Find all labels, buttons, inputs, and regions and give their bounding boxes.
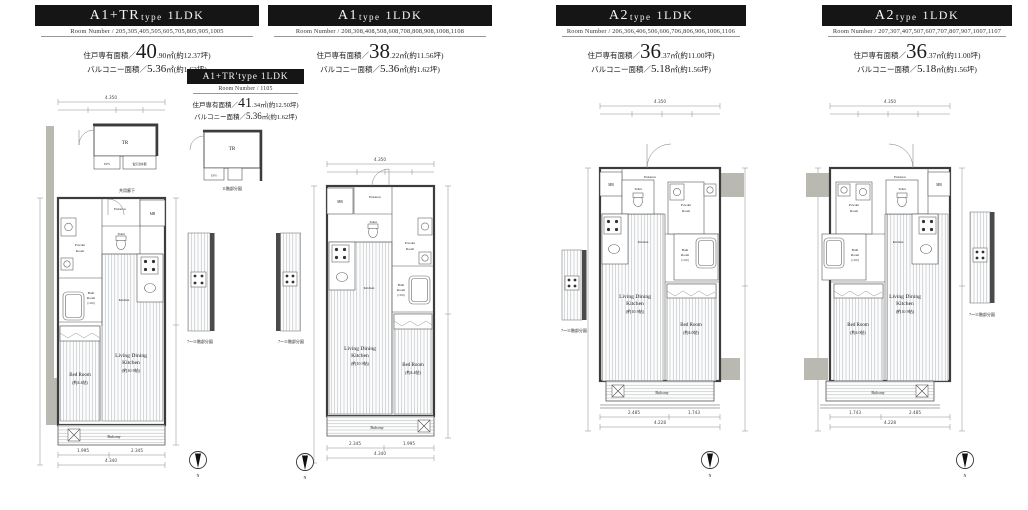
room-numbers: Room Number / 205,305,405,505,605,705,80… xyxy=(41,26,253,37)
room-label-balcony: Balcony xyxy=(871,390,884,395)
dim-bottom-total: 4.340 xyxy=(374,451,386,456)
room-label-bed: Bed Room xyxy=(680,323,702,328)
room-label-powder-2: Room xyxy=(682,209,691,213)
room-label-balcony: Balcony xyxy=(107,434,120,439)
compass-n-label: N xyxy=(964,473,967,478)
balcony-line: バルコニー面積／5.18㎡(約1.56坪) xyxy=(822,63,1012,75)
dim-bottom-b: 2.485 xyxy=(909,410,921,415)
header-a2-left: A2type1LDK Room Number / 206,306,406,506… xyxy=(556,5,746,75)
toilet: Toilet xyxy=(116,232,126,250)
neighbor-block-top xyxy=(720,173,744,197)
type-title-bar: A2type1LDK xyxy=(556,5,746,26)
partial-plan-strip: 7〜11階部分図 xyxy=(969,212,995,317)
type-layout: 1LDK xyxy=(652,8,693,23)
dim-top-total: 4.350 xyxy=(884,99,896,104)
type-name: A1+TR xyxy=(90,8,140,24)
type-word: type xyxy=(358,9,382,22)
room-label-ldk-2: Kitchen xyxy=(351,353,369,359)
balcony-label: バルコニー面積／ xyxy=(857,65,917,74)
room-label-kitchen: Kitchen xyxy=(893,240,904,244)
dim-bottom-total: 4.228 xyxy=(654,420,666,425)
toilet: Toilet xyxy=(368,220,378,238)
room-label-eps: EPS xyxy=(104,162,110,166)
room-label-mb: MB xyxy=(936,183,942,187)
trunk-room: TR EPS 電気温水器 xyxy=(79,125,157,169)
room-label-ldk-1: Living Dining xyxy=(889,294,921,300)
room-label-bath-1: Bath xyxy=(398,283,405,287)
area-line: 住戸専有面積／40.90㎡(約12.37坪) xyxy=(35,39,259,64)
room-numbers: Room Number / 207,307,407,507,607,707,80… xyxy=(828,26,1006,37)
closet xyxy=(394,314,432,329)
room-label-ldk-2: Kitchen xyxy=(896,301,914,307)
balcony-unit: ㎡(約1.56坪) xyxy=(670,65,711,74)
room-label-powder-1: Powder xyxy=(849,203,860,207)
room-label-bath-2: Room xyxy=(681,253,690,257)
dim-bottom-total: 4.340 xyxy=(105,458,117,463)
meter-box: MB xyxy=(600,172,622,196)
room-label-bath-3: (1116) xyxy=(681,259,688,262)
partial-plan-strip: 7〜11階部分図 xyxy=(187,233,214,344)
room-label-bath-3: (1116) xyxy=(851,259,858,262)
dim-bottom-a: 1.743 xyxy=(849,410,861,415)
room-label-bath-2: Room xyxy=(397,288,406,292)
area-unit: .22㎡(約11.56坪) xyxy=(390,51,443,60)
meter-box: MB xyxy=(327,188,353,214)
room-label-kitchen: Kitchen xyxy=(364,286,375,290)
room-label-toilet: Toilet xyxy=(117,232,125,236)
area-unit: .90㎡(約12.37坪) xyxy=(157,51,211,60)
room-label-balcony: Balcony xyxy=(655,390,668,395)
floorplan-a1-drawing: 4.350 2.345 1.995 4.340 MB Entrance Toi xyxy=(272,86,497,506)
floorplan-a2-left-drawing: 4.350 2.485 1.743 4.228 Entrance MB xyxy=(550,86,795,510)
label-common-corridor: 共用廊下 xyxy=(119,187,135,193)
header-a2-right: A2type1LDK Room Number / 207,307,407,507… xyxy=(822,5,1012,75)
caption-partial-plan: 7〜11階部分図 xyxy=(187,338,213,344)
balcony-unit: ㎡(約1.62坪) xyxy=(399,65,440,74)
room-numbers: Room Number / 206,306,406,506,606,706,80… xyxy=(562,26,740,37)
meter-box: MB xyxy=(140,200,165,226)
bath-room: Bath Room (1116) xyxy=(674,234,718,280)
area-line: 住戸専有面積／38.22㎡(約11.56坪) xyxy=(268,39,492,64)
room-label-bath-1: Bath xyxy=(88,291,95,295)
type-layout: 1LDK xyxy=(164,8,205,23)
area-value: 40 xyxy=(136,39,157,63)
room-label-balcony: Balcony xyxy=(370,425,383,430)
balcony-value: 5.18 xyxy=(651,63,670,75)
trunk-room-11f: TR EPS 11階部分図 xyxy=(190,131,261,191)
balcony-value: 5.36 xyxy=(147,63,166,75)
shaft-wall xyxy=(46,126,54,378)
room-label-tr: TR xyxy=(122,141,129,146)
room-label-bed-size: (約4.4帖) xyxy=(72,379,88,385)
caption-partial-plan: 7〜11階部分図 xyxy=(561,327,587,333)
type-name: A2 xyxy=(609,8,629,24)
caption-11f-partial: 11階部分図 xyxy=(222,185,242,191)
room-label-bed-size: (約4.4帖) xyxy=(405,369,421,375)
area-label: 住戸専有面積／ xyxy=(854,51,907,60)
type-word: type xyxy=(895,9,919,22)
room-label-bath-2: Room xyxy=(87,296,96,300)
balcony-line: バルコニー面積／5.18㎡(約1.56坪) xyxy=(556,63,746,75)
room-label-ldk-size: (約10.9帖) xyxy=(122,367,141,374)
dim-bottom-b: 2.345 xyxy=(131,448,143,453)
balcony-unit: ㎡(約1.56坪) xyxy=(936,65,977,74)
floorplan-a1tr-drawing: 4.350 1.995 2.345 4.340 TR EPS 電気温水器 TR … xyxy=(30,86,310,506)
room-label-bath-2: Room xyxy=(851,253,860,257)
caption-partial-plan: 7〜11階部分図 xyxy=(969,311,995,317)
room-label-bed: Bed Room xyxy=(402,363,424,368)
room-label-bath-1: Bath xyxy=(682,248,689,252)
room-label-ldk-size: (約10.9帖) xyxy=(626,308,645,315)
room-label-powder-1: Powder xyxy=(681,203,692,207)
balcony-label: バルコニー面積／ xyxy=(591,65,651,74)
dim-bottom-total: 4.228 xyxy=(884,420,896,425)
room-label-ldk-1: Living Dining xyxy=(344,346,376,352)
neighbor-block-bottom xyxy=(804,358,828,380)
room-label-kitchen: Kitchen xyxy=(638,240,649,244)
dim-top-total: 4.350 xyxy=(654,99,666,104)
room-label-mb: MB xyxy=(608,183,614,187)
compass-icon: N xyxy=(297,454,314,481)
toilet: Toilet xyxy=(622,180,654,214)
room-label-powder-1: Powder xyxy=(75,243,86,247)
type-name: A2 xyxy=(875,8,895,24)
area-label: 住戸専有面積／ xyxy=(317,51,370,60)
header-a1: A1type1LDK Room Number / 208,308,408,508… xyxy=(268,5,492,75)
partial-plan-strip: 7〜11階部分図 xyxy=(276,233,304,344)
room-label-mb: MB xyxy=(337,200,343,204)
room-label-powder-2: Room xyxy=(406,247,415,251)
compass-icon: N xyxy=(702,452,719,479)
area-value: 38 xyxy=(369,39,390,63)
partial-plan-strip: 7〜11階部分図 xyxy=(561,250,587,333)
powder-room: Powder Room xyxy=(836,182,872,234)
floorplan-brochure-page: A1+TRtype1LDK Room Number / 205,305,405,… xyxy=(0,0,1028,510)
shaft-wall-lower xyxy=(46,378,58,425)
room-label-powder-1: Powder xyxy=(405,241,416,245)
room-label-toilet: Toilet xyxy=(898,187,906,191)
room-label-entrance: Entrance xyxy=(644,175,657,179)
dim-bottom-b: 1.743 xyxy=(688,410,700,415)
compass-n-label: N xyxy=(304,475,307,480)
room-label-bed-size: (約4.0帖) xyxy=(683,329,699,335)
room-label-mb: MB xyxy=(150,212,156,216)
room-label-bath-1: Bath xyxy=(852,248,859,252)
room-label-ldk-2: Kitchen xyxy=(626,301,644,307)
room-label-bath-3: (1116) xyxy=(397,294,404,297)
type-word: type xyxy=(629,9,653,22)
room-label-ldk-1: Living Dining xyxy=(619,294,651,300)
room-label-bath-3: (1116) xyxy=(87,302,94,305)
dim-bottom-a: 1.995 xyxy=(77,448,89,453)
compass-icon: N xyxy=(957,452,974,479)
balcony-line: バルコニー面積／5.36㎡(約1.62坪) xyxy=(268,63,492,75)
compass-icon: N xyxy=(190,452,207,479)
room-numbers: Room Number / 208,308,408,508,608,708,80… xyxy=(274,26,486,37)
type-word: type xyxy=(140,9,164,22)
type-name: A1 xyxy=(338,8,358,24)
room-label-bed-size: (約4.0帖) xyxy=(850,329,866,335)
caption-partial-plan: 7〜11階部分図 xyxy=(278,338,304,344)
area-label: 住戸専有面積／ xyxy=(588,51,641,60)
type-title-bar: A2type1LDK xyxy=(822,5,1012,26)
room-label-eps: EPS xyxy=(211,174,217,178)
dim-top-total: 4.350 xyxy=(374,157,386,162)
room-label-toilet: Toilet xyxy=(369,220,377,224)
floorplan-a2-right-drawing: 4.350 1.743 2.485 4.228 Entrance MB xyxy=(790,86,1025,510)
room-label-ldk-size: (約10.9帖) xyxy=(896,308,915,315)
room-label-entrance: Entrance xyxy=(114,207,127,211)
dim-bottom-a: 2.345 xyxy=(349,441,361,446)
area-unit: .37㎡(約11.00坪) xyxy=(661,51,714,60)
room-label-ldk-1: Living Dining xyxy=(115,353,147,359)
room-label-bed: Bed Room xyxy=(847,323,869,328)
room-label-bed: Bed Room xyxy=(69,373,91,378)
room-label-toilet: Toilet xyxy=(634,187,642,191)
room-label-ldk-2: Kitchen xyxy=(122,360,140,366)
area-unit: .37㎡(約11.00坪) xyxy=(927,51,980,60)
room-label-entrance: Entrance xyxy=(369,195,382,199)
type-layout: 1LDK xyxy=(381,8,422,23)
dim-top-total: 4.350 xyxy=(105,95,117,100)
balcony: Balcony xyxy=(327,416,434,436)
type-layout: 1LDK xyxy=(918,8,959,23)
balcony: Balcony xyxy=(600,381,720,408)
balcony: Balcony xyxy=(820,381,940,408)
area-line: 住戸専有面積／36.37㎡(約11.00坪) xyxy=(822,39,1012,64)
balcony: Balcony xyxy=(58,425,165,445)
balcony-value: 5.36 xyxy=(380,63,399,75)
closet xyxy=(667,284,716,298)
dim-bottom-b: 1.995 xyxy=(403,441,415,446)
room-label-tr: TR xyxy=(229,147,236,152)
balcony-label: バルコニー面積／ xyxy=(320,65,380,74)
room-label-heater: 電気温水器 xyxy=(133,162,147,166)
room-label-entrance: Entrance xyxy=(894,175,907,179)
area-line: 住戸専有面積／36.37㎡(約11.00坪) xyxy=(556,39,746,64)
type-title-bar: A1type1LDK xyxy=(268,5,492,26)
room-label-powder-2: Room xyxy=(76,249,85,253)
neighbor-block-top xyxy=(806,173,830,197)
dim-bottom-a: 2.485 xyxy=(628,410,640,415)
area-value: 36 xyxy=(906,39,927,63)
balcony-value: 5.18 xyxy=(917,63,936,75)
balcony-label: バルコニー面積／ xyxy=(87,65,147,74)
toilet: Toilet xyxy=(886,180,918,214)
room-label-kitchen: Kitchen xyxy=(119,298,130,302)
compass-n-label: N xyxy=(197,473,200,478)
area-label: 住戸専有面積／ xyxy=(83,51,136,60)
closet xyxy=(60,326,100,341)
bath-room: Bath Room (1116) xyxy=(822,234,866,280)
header-a1tr: A1+TRtype1LDK Room Number / 205,305,405,… xyxy=(35,5,259,75)
compass-n-label: N xyxy=(709,473,712,478)
room-label-powder-2: Room xyxy=(850,209,859,213)
room-label-ldk-size: (約10.9帖) xyxy=(351,360,370,367)
meter-box: MB xyxy=(928,172,950,196)
area-value: 36 xyxy=(640,39,661,63)
type-title-bar: A1+TRtype1LDK xyxy=(35,5,259,26)
closet xyxy=(834,284,883,298)
